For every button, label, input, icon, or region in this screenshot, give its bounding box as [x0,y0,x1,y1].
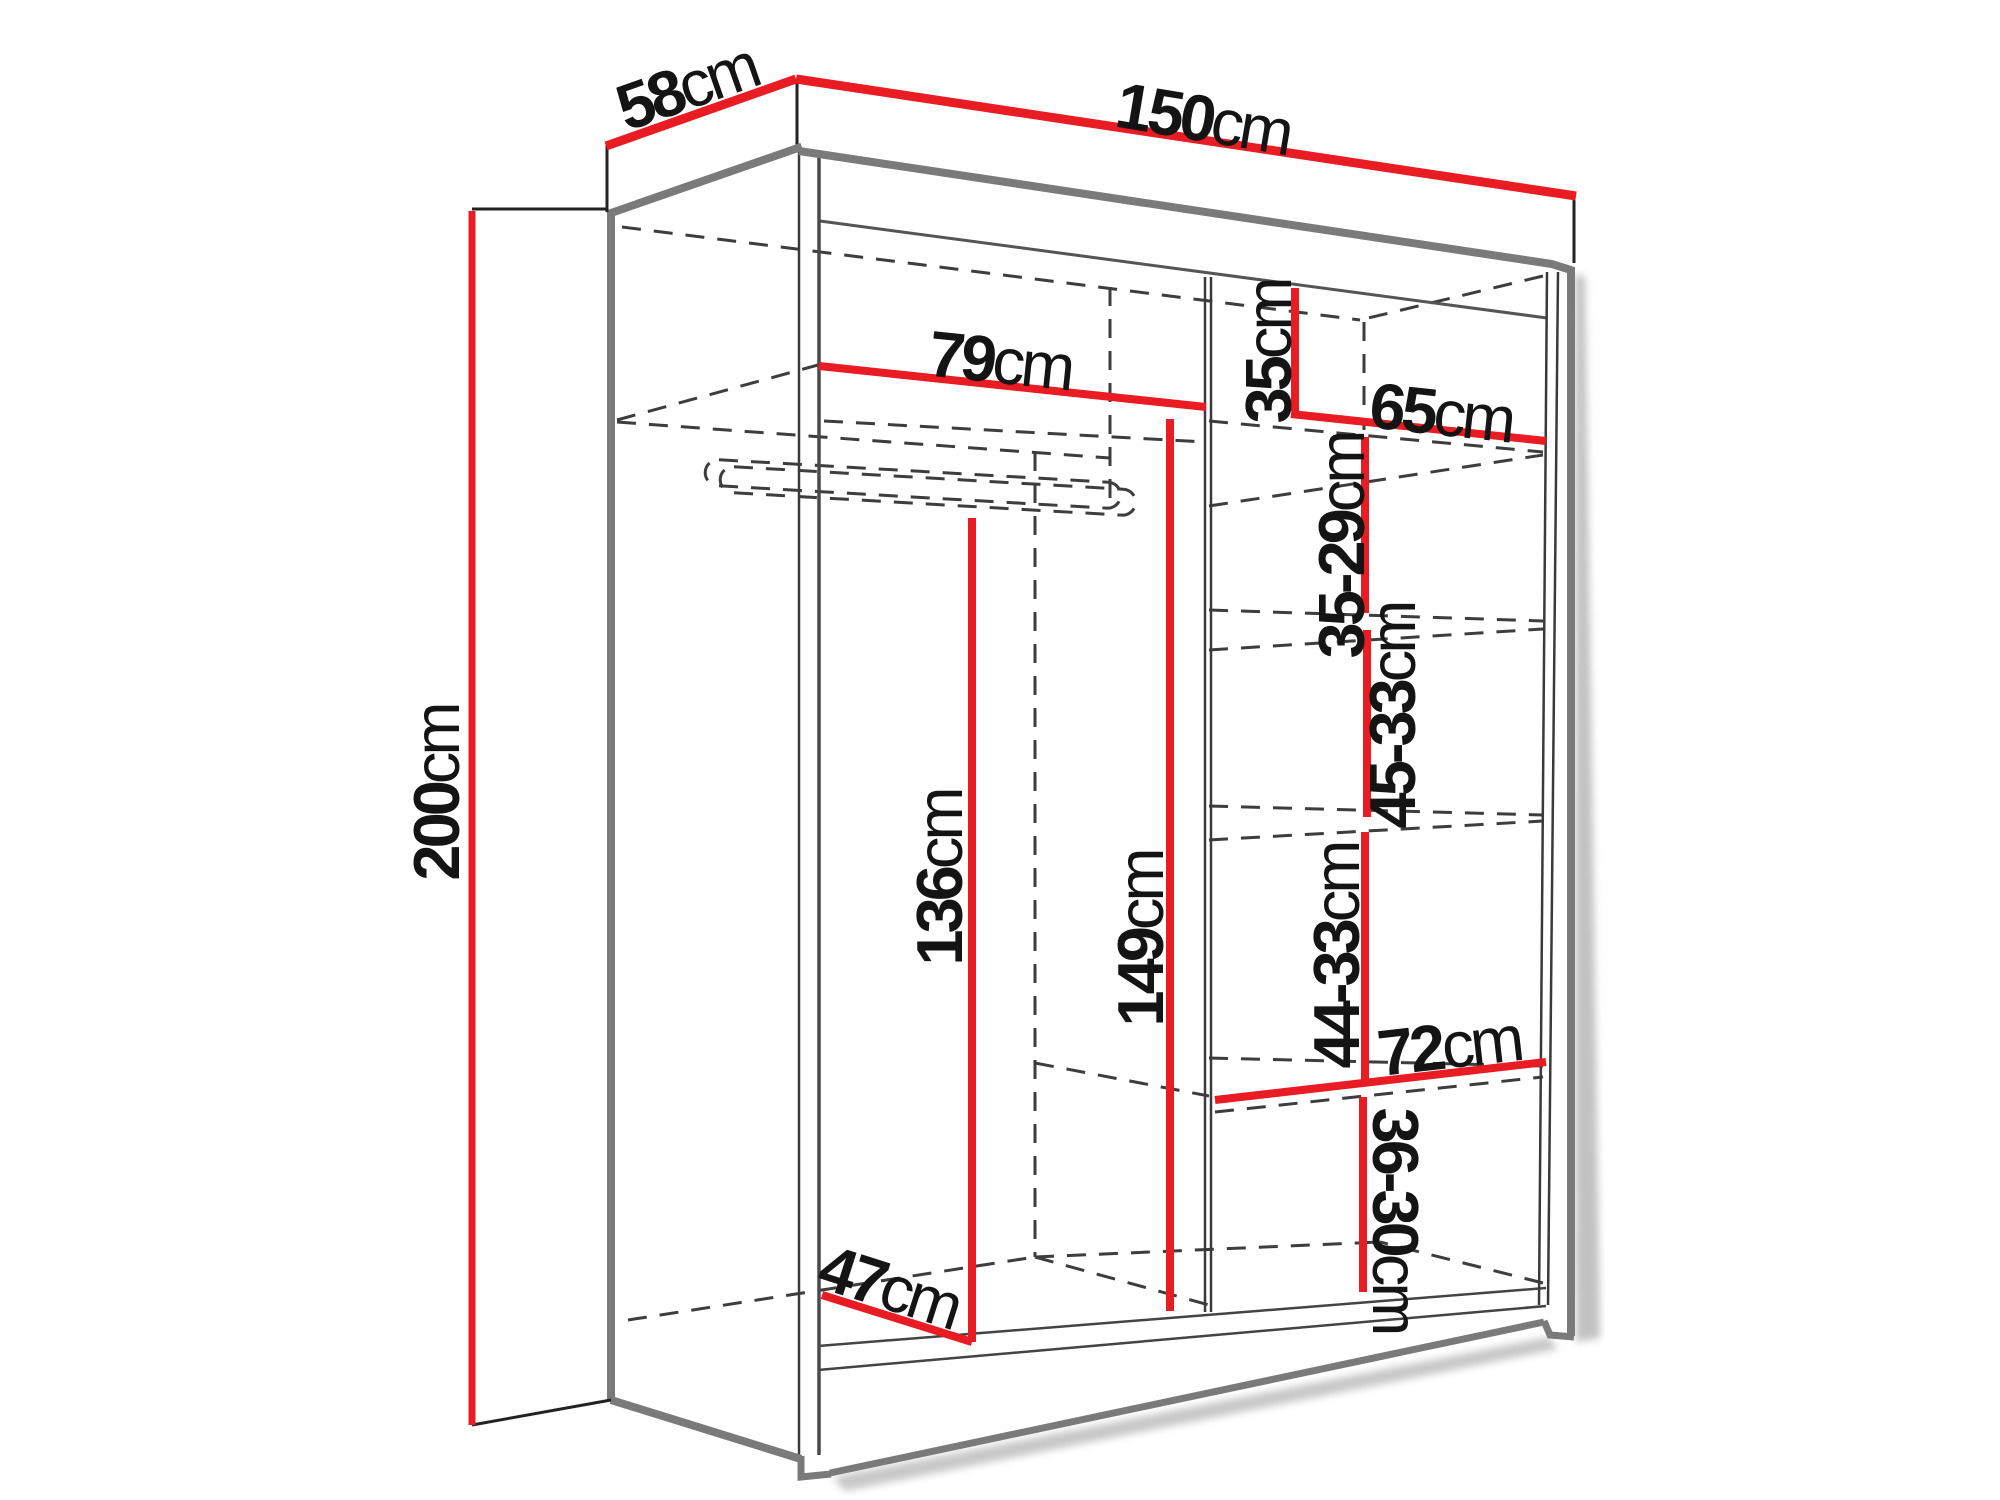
svg-text:65cm: 65cm [1366,369,1516,457]
svg-text:44-33cm: 44-33cm [1300,844,1373,1069]
svg-text:35cm: 35cm [1232,281,1305,424]
svg-text:45-33cm: 45-33cm [1356,604,1429,829]
svg-text:36-30cm: 36-30cm [1359,1108,1432,1333]
svg-text:149cm: 149cm [1104,851,1177,1026]
svg-text:200cm: 200cm [400,705,473,880]
svg-text:58cm: 58cm [607,28,766,144]
svg-text:72cm: 72cm [1374,1001,1524,1090]
svg-text:136cm: 136cm [903,790,976,965]
svg-text:47cm: 47cm [810,1230,968,1343]
svg-text:79cm: 79cm [925,317,1075,405]
svg-text:150cm: 150cm [1111,68,1296,169]
